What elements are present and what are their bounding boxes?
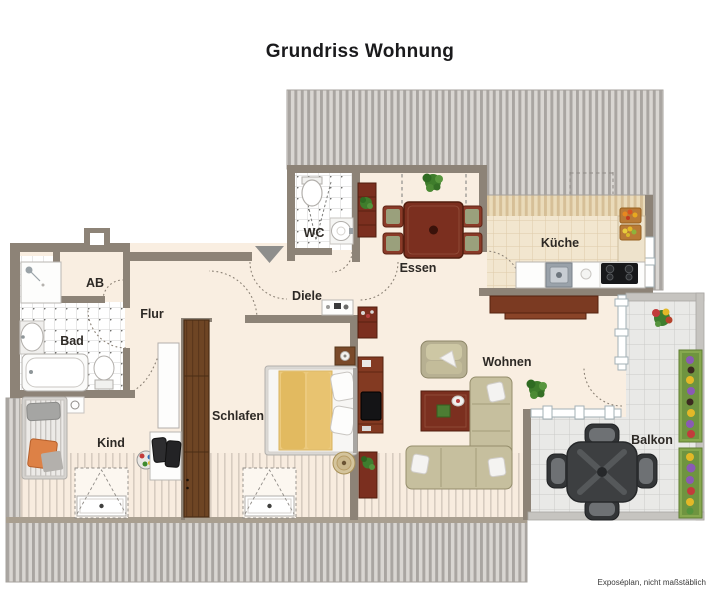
coffee-table: [421, 391, 470, 431]
roof-hatch-bottom: [6, 520, 527, 582]
kids-bed: [22, 397, 67, 479]
footer-note: Exposéplan, nicht maßstäblich: [598, 578, 707, 587]
label-flur: Flur: [140, 307, 164, 321]
label-diele: Diele: [292, 289, 322, 303]
wardrobe: [184, 320, 209, 517]
flower-box-lower: [679, 448, 702, 518]
tv-screen: [361, 392, 381, 420]
floorplan-svg: WC AB Flur Bad Kind Schlafen Diele Essen…: [0, 0, 719, 600]
cooktop: [601, 263, 638, 284]
label-kind: Kind: [97, 436, 125, 450]
floorplan-page: WC AB Flur Bad Kind Schlafen Diele Essen…: [0, 0, 719, 600]
nightstand: [335, 347, 355, 365]
wall-shelf-red: [358, 307, 377, 338]
round-side-table: [333, 452, 355, 474]
bath-toilet: [94, 356, 114, 389]
armchair: [421, 341, 467, 378]
wc-toilet: [302, 180, 322, 206]
label-schlafen: Schlafen: [212, 409, 264, 423]
chimney-flue: [90, 233, 104, 245]
tv-cabinet: [358, 357, 383, 433]
kitchen-sink: [581, 269, 591, 279]
sideboard: [490, 296, 598, 319]
shower: [21, 262, 61, 303]
label-ab: AB: [86, 276, 104, 290]
label-balkon: Balkon: [631, 433, 673, 447]
label-wohnen: Wohnen: [482, 355, 531, 369]
flower-box-upper: [679, 350, 702, 442]
diele-dresser: [322, 300, 353, 315]
kids-side-box: [66, 397, 84, 413]
bath-sink: [20, 321, 44, 354]
wc-sink: [332, 222, 351, 241]
page-title: Grundriss Wohnung: [266, 41, 454, 62]
label-essen: Essen: [400, 261, 437, 275]
roof-hatch-left: [6, 398, 20, 520]
desk: [150, 432, 181, 480]
label-wc: WC: [304, 226, 325, 240]
hall-cabinet: [358, 183, 376, 237]
kind-door-leaf: [158, 343, 179, 428]
dormer-schlafen: [243, 468, 296, 518]
label-bad: Bad: [60, 334, 84, 348]
dormer-kind: [75, 468, 128, 518]
label-kueche: Küche: [541, 236, 579, 250]
low-red-cabinet: [359, 452, 377, 498]
double-bed: [265, 366, 357, 455]
bathtub: [22, 354, 88, 391]
